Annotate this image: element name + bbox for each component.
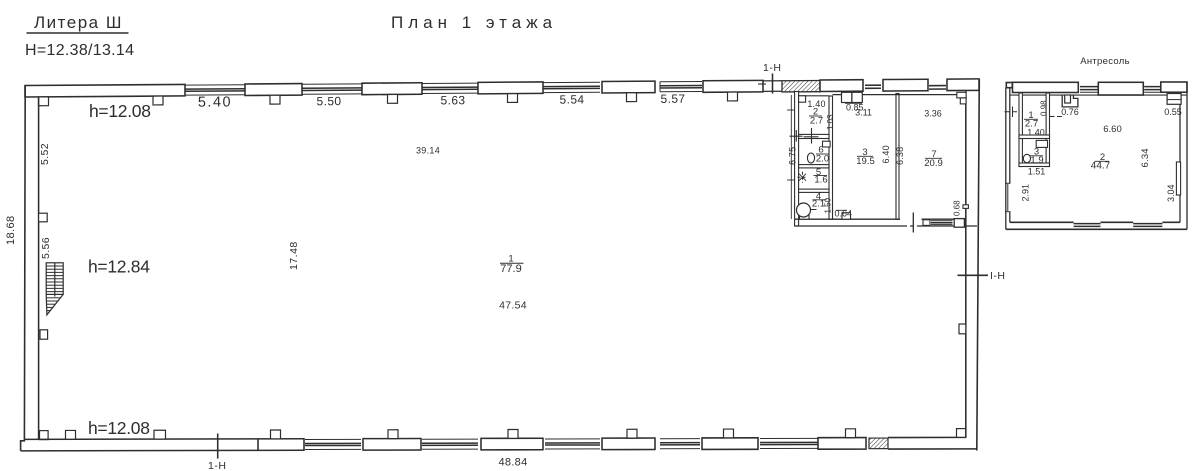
svg-text:0.55: 0.55	[1164, 107, 1182, 117]
svg-text:1.9: 1.9	[1030, 155, 1043, 166]
svg-text:1.50: 1.50	[824, 197, 833, 213]
svg-text:5.52: 5.52	[39, 143, 51, 165]
svg-text:0.64: 0.64	[835, 209, 853, 219]
svg-text:47.54: 47.54	[499, 300, 527, 312]
svg-text:Н=12.38/13.14: Н=12.38/13.14	[25, 42, 134, 59]
svg-text:19.5: 19.5	[856, 156, 875, 167]
svg-text:h=12.08: h=12.08	[88, 418, 150, 438]
svg-text:3.36: 3.36	[924, 109, 942, 119]
svg-text:3.04: 3.04	[1166, 184, 1176, 202]
svg-text:6.38: 6.38	[895, 147, 905, 165]
svg-text:39.14: 39.14	[416, 146, 440, 156]
svg-text:6.34: 6.34	[1140, 148, 1151, 167]
svg-text:44.7: 44.7	[1091, 161, 1111, 172]
svg-text:1.40: 1.40	[1027, 128, 1045, 138]
svg-text:2.7: 2.7	[810, 116, 823, 127]
svg-text:17.48: 17.48	[288, 241, 300, 270]
svg-text:48.84: 48.84	[498, 457, 527, 469]
svg-text:2.91: 2.91	[1021, 184, 1031, 202]
svg-text:5.57: 5.57	[661, 92, 686, 106]
svg-text:77.9: 77.9	[500, 263, 521, 275]
svg-text:0.68: 0.68	[953, 200, 962, 216]
svg-text:I-Н: I-Н	[990, 270, 1006, 282]
svg-text:5.63: 5.63	[441, 93, 466, 107]
svg-text:2.0: 2.0	[816, 154, 829, 165]
svg-text:6.40: 6.40	[881, 145, 891, 163]
svg-text:Литера Ш: Литера Ш	[34, 13, 123, 32]
svg-text:1-Н: 1-Н	[208, 460, 226, 471]
svg-text:0.98: 0.98	[1040, 100, 1049, 116]
svg-text:Антресоль: Антресоль	[1080, 56, 1130, 67]
svg-text:5.56: 5.56	[40, 237, 52, 259]
svg-text:h=12.84: h=12.84	[88, 257, 150, 277]
svg-text:6.60: 6.60	[1103, 124, 1122, 135]
svg-text:5.50: 5.50	[317, 94, 342, 108]
svg-text:5.40: 5.40	[198, 94, 232, 110]
svg-text:20.9: 20.9	[924, 158, 943, 169]
svg-text:1.51: 1.51	[1028, 167, 1046, 177]
svg-text:1.03: 1.03	[826, 114, 835, 130]
svg-text:h=12.08: h=12.08	[89, 101, 151, 121]
svg-text:План 1 этажа: План 1 этажа	[391, 13, 557, 32]
svg-text:0.76: 0.76	[1061, 107, 1079, 117]
svg-text:1-Н: 1-Н	[763, 62, 781, 74]
svg-text:18.68: 18.68	[5, 215, 17, 245]
svg-text:5.54: 5.54	[560, 92, 585, 106]
svg-text:6.75: 6.75	[788, 147, 798, 165]
svg-text:1.6: 1.6	[814, 175, 827, 186]
svg-text:3.11: 3.11	[855, 108, 872, 118]
